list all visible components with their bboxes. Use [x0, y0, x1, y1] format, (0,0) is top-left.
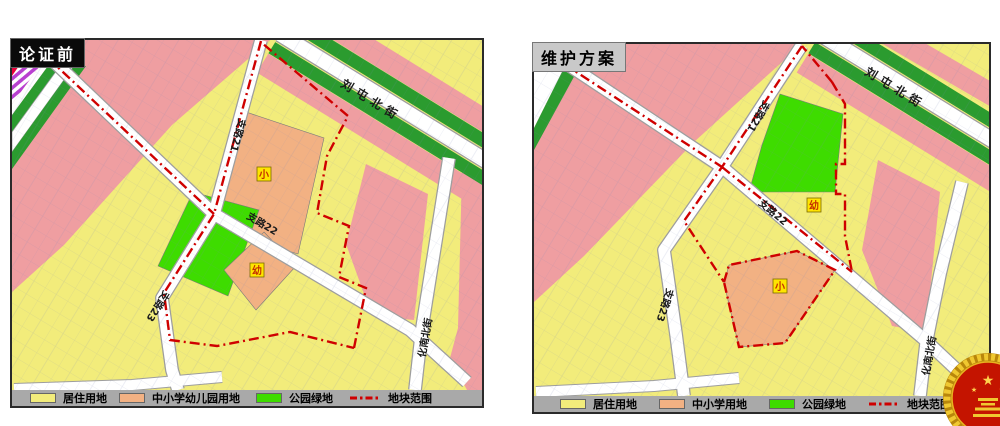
emblem-star-small-left-icon: ★	[971, 386, 977, 394]
map-before-panel: 论证前	[10, 38, 484, 408]
map-before-canvas: 刘屯北街 支路21 支路22 支路23 化南北街 小 幼	[12, 40, 482, 390]
emblem-gate-mid	[981, 403, 995, 406]
legend-item-boundary: 地块范围	[349, 390, 432, 406]
legend-label: 居住用地	[593, 396, 637, 412]
school-swatch	[120, 394, 145, 403]
legend-label: 中小学幼儿园用地	[152, 390, 240, 406]
kindergarten-badge: 幼	[252, 264, 262, 277]
legend-item-park: 公园绿地	[769, 396, 846, 412]
legend-item-boundary: 地块范围	[868, 396, 951, 412]
legend-bar-right: 居住用地 中小学用地 公园绿地 地块范围	[534, 396, 989, 412]
kindergarten-badge: 幼	[809, 199, 819, 212]
map-after-title: 维护方案	[532, 42, 626, 72]
legend-label: 地块范围	[388, 390, 432, 406]
emblem-gate-base	[975, 408, 1000, 411]
emblem-star-icon: ★	[982, 373, 995, 389]
school-swatch	[660, 400, 685, 409]
park-swatch	[770, 400, 795, 409]
national-emblem-icon: ★ ★ ★	[940, 352, 1000, 426]
legend-label: 中小学用地	[692, 396, 747, 412]
page: 论证前	[0, 0, 1000, 426]
legend-item-school: 中小学幼儿园用地	[119, 390, 240, 406]
legend-label: 居住用地	[63, 390, 107, 406]
legend-item-school: 中小学用地	[659, 396, 747, 412]
primary-school-badge: 小	[774, 280, 785, 293]
residential-swatch	[31, 394, 56, 403]
legend-label: 公园绿地	[802, 396, 846, 412]
national-emblem: ★ ★ ★	[940, 352, 1000, 426]
map-after-canvas: 刘屯北街 支路21 支路22 支路23 化南北街 幼 小	[534, 44, 989, 396]
legend-item-residential: 居住用地	[30, 390, 107, 406]
residential-swatch	[561, 400, 586, 409]
legend-bar-left: 居住用地 中小学幼儿园用地 公园绿地 地块范围	[12, 390, 482, 406]
legend-label: 公园绿地	[289, 390, 333, 406]
legend-item-park: 公园绿地	[256, 390, 333, 406]
emblem-gate-roof	[978, 398, 998, 401]
primary-school-badge: 小	[258, 168, 269, 181]
map-after-panel: 维护方案	[532, 42, 991, 414]
emblem-gate-plinth	[973, 414, 1000, 417]
park-swatch	[257, 394, 282, 403]
legend-item-residential: 居住用地	[560, 396, 637, 412]
map-before-title: 论证前	[10, 38, 85, 68]
